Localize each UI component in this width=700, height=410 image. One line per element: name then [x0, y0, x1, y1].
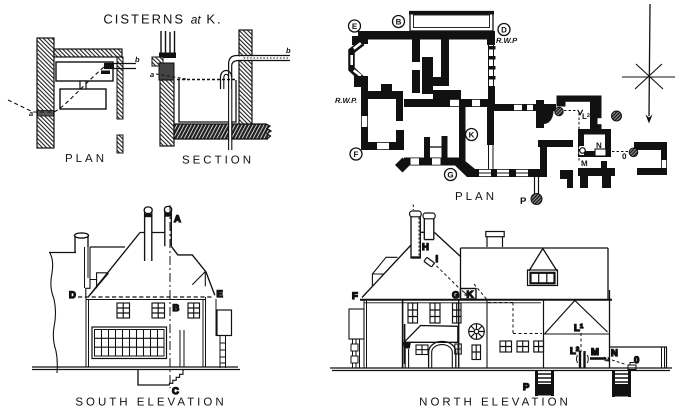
svg-text:F: F	[354, 150, 359, 159]
svg-text:b: b	[286, 46, 291, 55]
svg-text:0: 0	[634, 355, 639, 366]
svg-text:D: D	[501, 26, 507, 35]
svg-text:B: B	[173, 303, 180, 314]
svg-text:E: E	[352, 22, 358, 31]
svg-text:C: C	[172, 386, 179, 397]
svg-text:0: 0	[622, 152, 627, 161]
svg-text:M: M	[581, 159, 588, 168]
svg-text:P: P	[523, 382, 530, 393]
svg-text:CISTERNS at K.: CISTERNS at K.	[103, 12, 222, 27]
svg-text:R.W.P: R.W.P	[496, 36, 518, 45]
svg-text:a: a	[29, 109, 33, 118]
svg-text:NORTH ELEVATION: NORTH ELEVATION	[419, 397, 571, 409]
svg-text:H: H	[422, 242, 429, 253]
svg-text:N: N	[611, 348, 618, 359]
svg-text:E: E	[217, 289, 223, 300]
svg-text:F: F	[352, 291, 358, 302]
svg-text:R.W.P.: R.W.P.	[335, 96, 357, 105]
svg-text:b: b	[135, 55, 140, 64]
svg-text:I: I	[436, 254, 439, 265]
svg-text:K: K	[469, 131, 475, 140]
svg-text:D: D	[69, 290, 76, 301]
svg-text:G: G	[447, 171, 453, 180]
svg-text:B: B	[396, 18, 402, 27]
svg-text:PLAN: PLAN	[65, 153, 107, 165]
svg-text:M: M	[591, 347, 599, 358]
svg-text:G: G	[452, 290, 459, 301]
svg-text:P: P	[520, 196, 527, 207]
svg-text:N: N	[596, 141, 602, 150]
svg-text:SOUTH ELEVATION: SOUTH ELEVATION	[75, 397, 226, 409]
svg-text:A: A	[174, 214, 181, 225]
svg-text:a: a	[150, 70, 154, 79]
svg-text:SECTION: SECTION	[182, 155, 254, 167]
svg-text:PLAN: PLAN	[455, 191, 497, 203]
